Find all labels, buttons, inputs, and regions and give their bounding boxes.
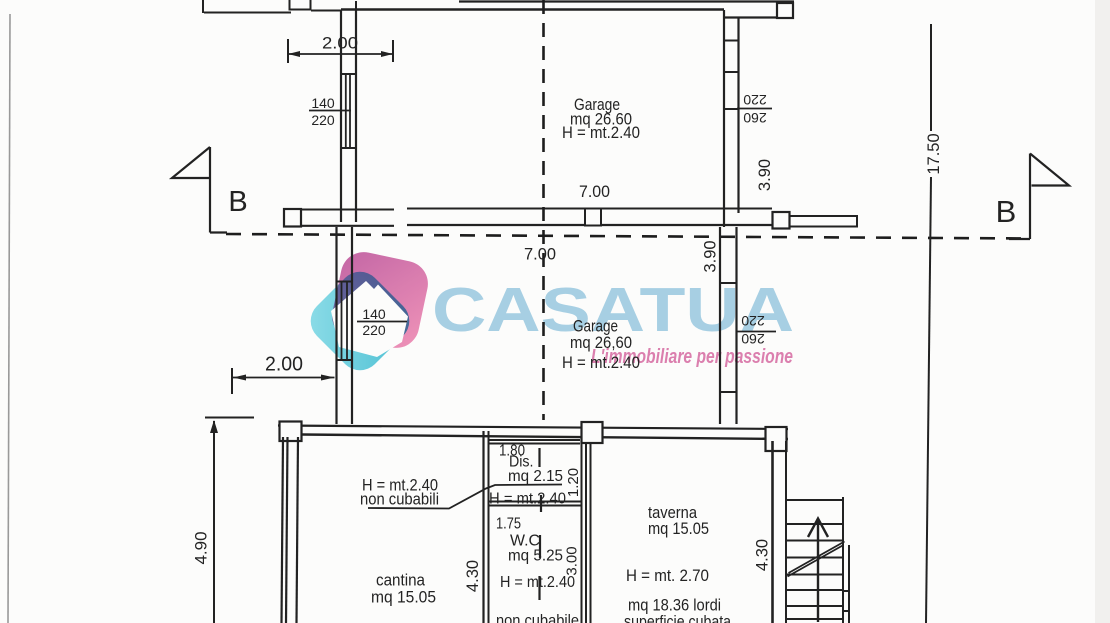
- svg-text:3.00: 3.00: [564, 546, 581, 575]
- svg-text:mq 2.15: mq 2.15: [508, 468, 563, 485]
- svg-text:cantina: cantina: [376, 572, 426, 590]
- svg-text:4.90: 4.90: [192, 531, 211, 564]
- svg-text:3.90: 3.90: [702, 240, 720, 272]
- svg-text:non cubabili: non cubabili: [360, 491, 439, 509]
- svg-text:220: 220: [741, 313, 765, 329]
- svg-text:7.00: 7.00: [579, 183, 610, 201]
- svg-text:H = mt. 2.70: H = mt. 2.70: [626, 567, 709, 585]
- svg-text:mq 18.36 lordi: mq 18.36 lordi: [628, 597, 721, 615]
- svg-text:17.50: 17.50: [925, 133, 943, 174]
- svg-text:220: 220: [362, 322, 386, 338]
- svg-text:7.00: 7.00: [524, 246, 556, 264]
- svg-text:1.75: 1.75: [496, 516, 521, 533]
- svg-text:220: 220: [311, 112, 335, 128]
- svg-text:mq 5.25: mq 5.25: [508, 548, 563, 565]
- svg-text:260: 260: [741, 331, 765, 347]
- svg-text:H = mt.2.40: H = mt.2.40: [562, 124, 640, 142]
- svg-text:4.30: 4.30: [464, 560, 482, 592]
- svg-text:B: B: [996, 194, 1017, 229]
- svg-text:mq 26,60: mq 26,60: [570, 334, 632, 352]
- svg-text:mq 15.05: mq 15.05: [648, 520, 709, 538]
- svg-text:mq 15.05: mq 15.05: [371, 589, 436, 607]
- svg-text:2.00: 2.00: [322, 34, 358, 53]
- svg-text:3.90: 3.90: [756, 159, 774, 191]
- svg-text:140: 140: [311, 95, 335, 111]
- svg-text:H = mt.2.40: H = mt.2.40: [562, 354, 640, 372]
- svg-text:260: 260: [743, 110, 767, 126]
- svg-text:non cubabile: non cubabile: [496, 613, 579, 623]
- svg-text:140: 140: [362, 306, 386, 322]
- svg-text:superficie cubata: superficie cubata: [624, 613, 732, 623]
- svg-text:B: B: [228, 186, 247, 218]
- svg-text:Garage: Garage: [573, 318, 618, 336]
- svg-text:220: 220: [743, 92, 767, 108]
- svg-text:2.00: 2.00: [265, 354, 303, 376]
- svg-text:4.30: 4.30: [754, 539, 772, 571]
- svg-text:1.20: 1.20: [565, 468, 582, 497]
